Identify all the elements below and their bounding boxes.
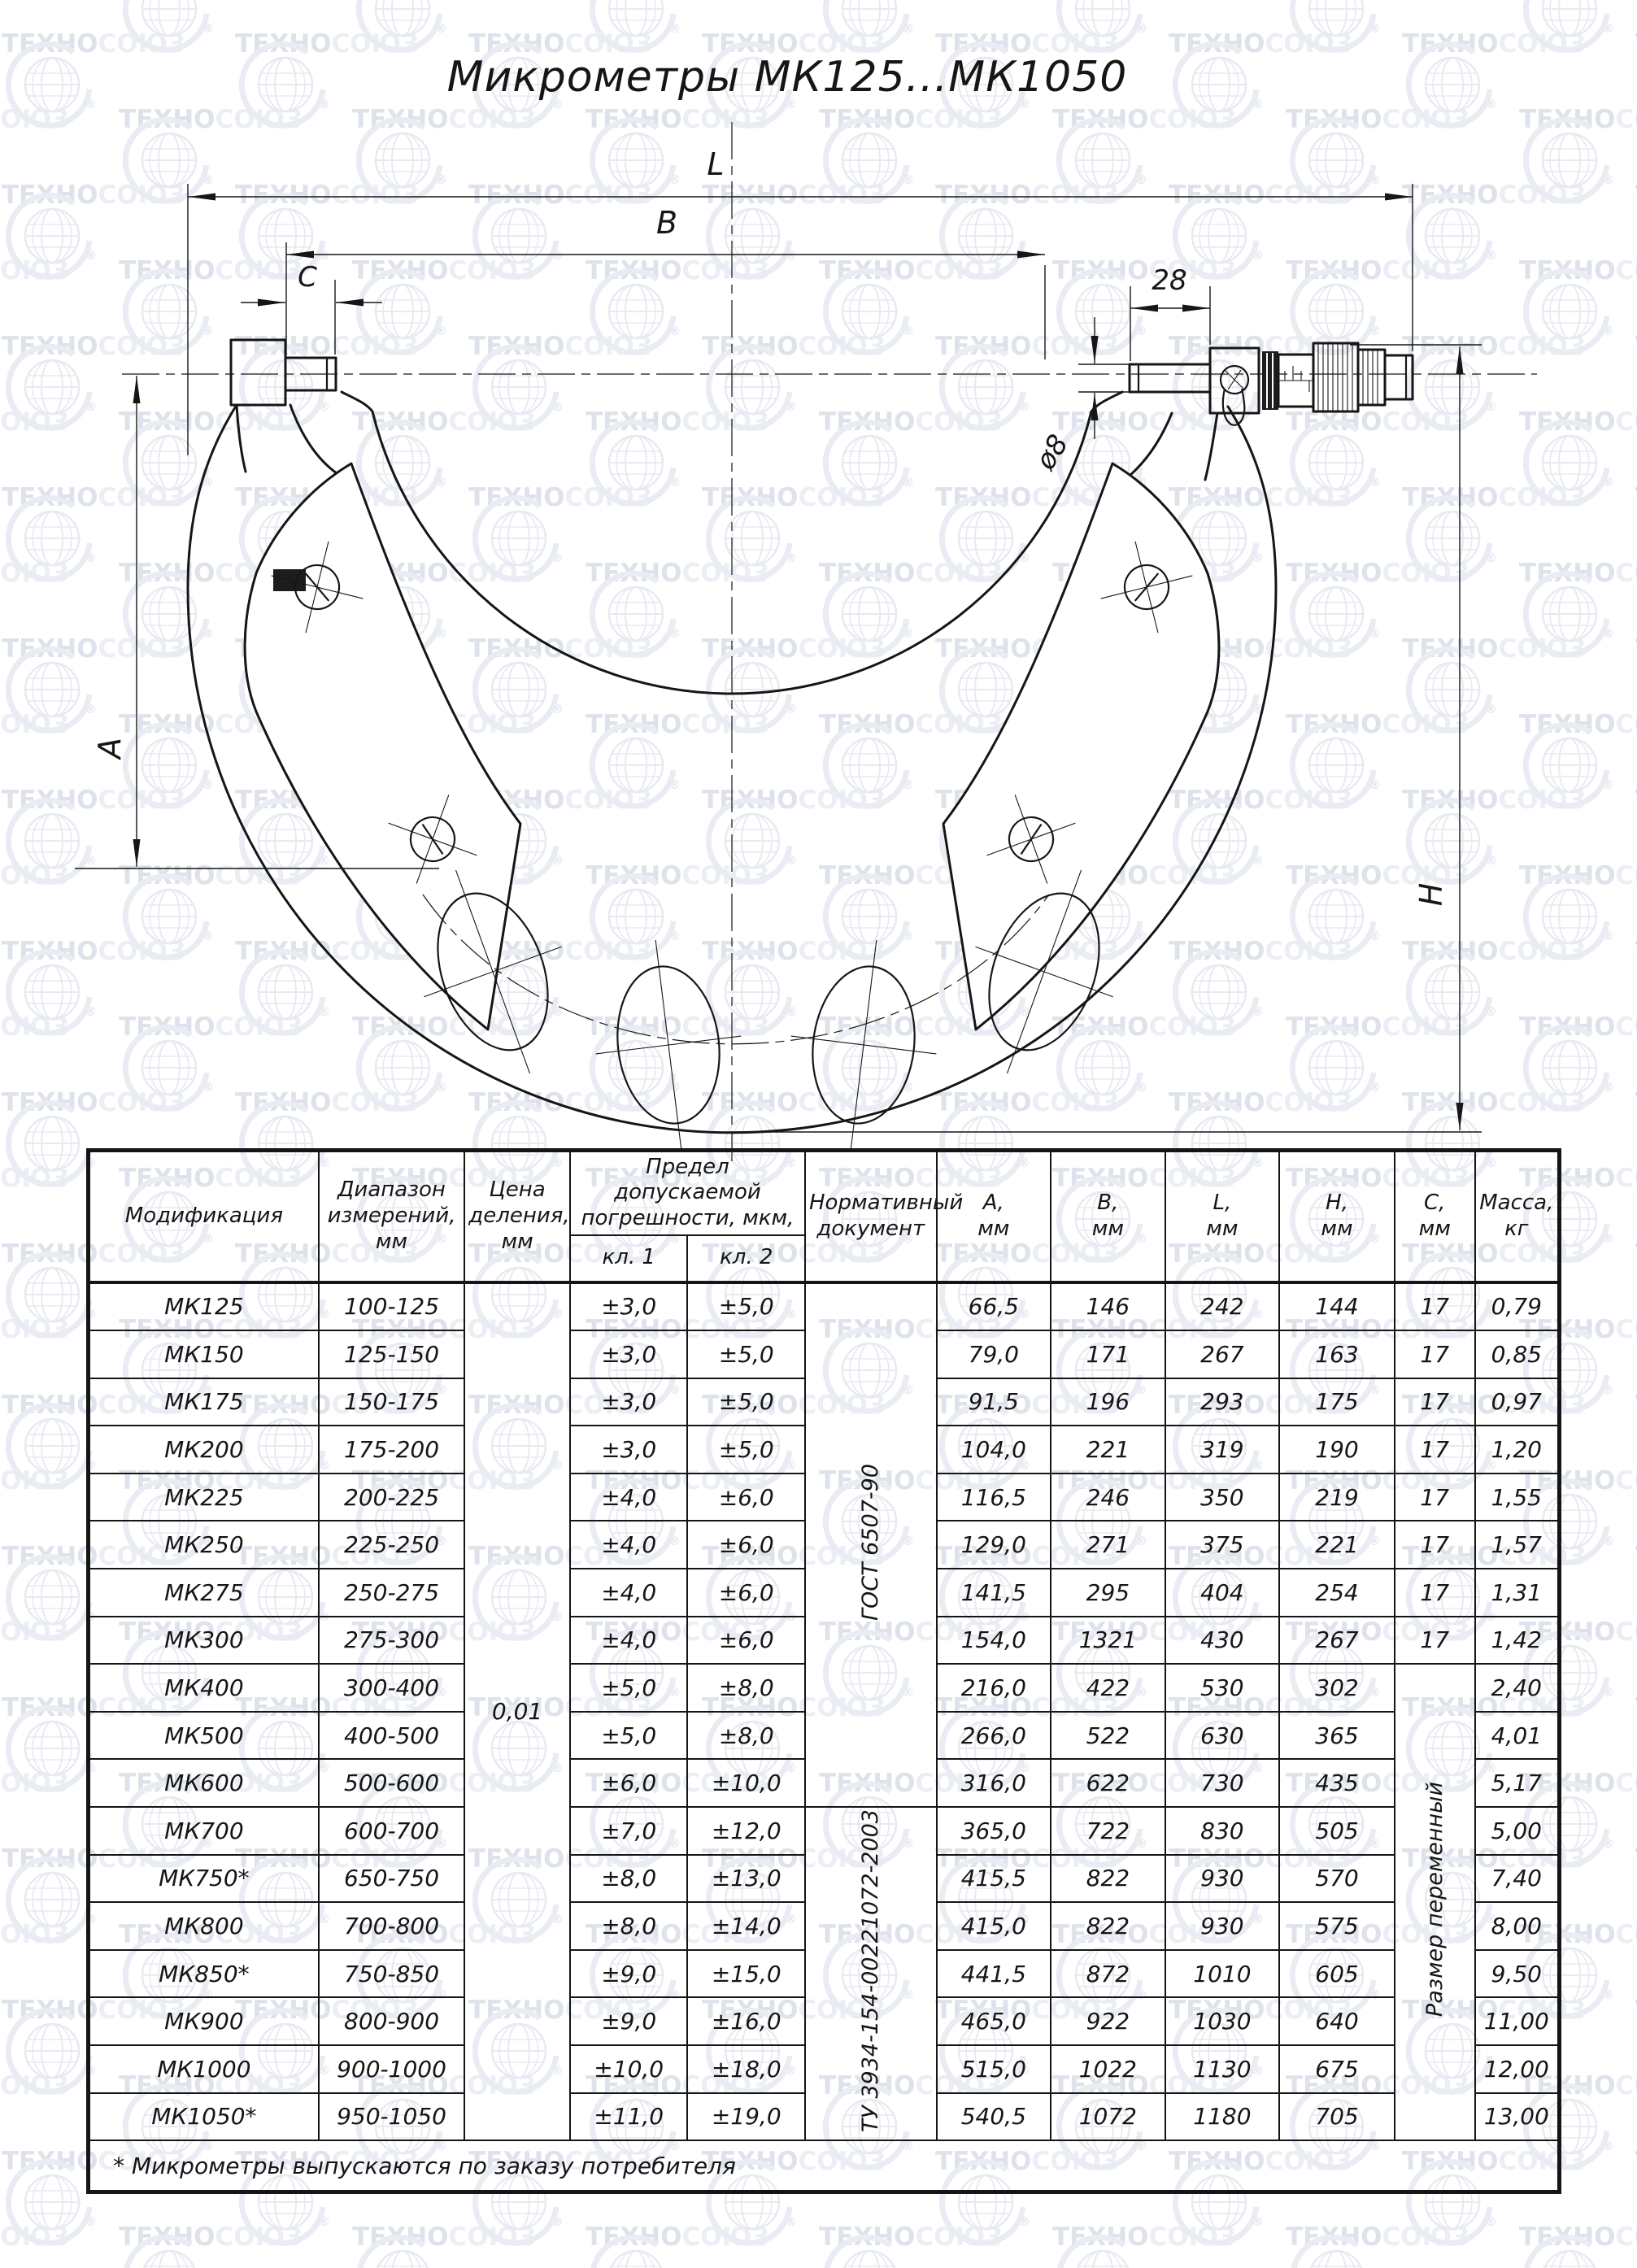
- spec-table-body: МК125100-1250,01±3,0±5,0ГОСТ 6507-9066,5…: [89, 1282, 1560, 2141]
- cell-b: 171: [1051, 1330, 1165, 1378]
- cell-l: 430: [1165, 1617, 1280, 1665]
- cell-error-class1: ±4,0: [570, 1617, 688, 1665]
- cell-b: 246: [1051, 1474, 1165, 1521]
- cell-mass: 8,00: [1475, 1902, 1560, 1950]
- cell-modification: МК900: [89, 1997, 319, 2045]
- cell-a: 316,0: [937, 1759, 1051, 1807]
- cell-b: 872: [1051, 1950, 1165, 1998]
- cell-range: 800-900: [319, 1997, 464, 2045]
- dimension-dia8: ø8: [1029, 317, 1132, 477]
- col-header-class1: кл. 1: [570, 1235, 688, 1282]
- cell-l: 1010: [1165, 1950, 1280, 1998]
- left-pad: [245, 464, 520, 1030]
- cell-range: 700-800: [319, 1902, 464, 1950]
- cell-l: 530: [1165, 1664, 1280, 1712]
- cell-h: 144: [1279, 1282, 1395, 1331]
- cell-l: 1030: [1165, 1997, 1280, 2045]
- cell-h: 605: [1279, 1950, 1395, 1998]
- cell-l: 267: [1165, 1330, 1280, 1378]
- spec-table-header: Модификация Диапазон измерений, мм Цена …: [89, 1151, 1560, 1282]
- thimble-knurling: [1318, 344, 1352, 411]
- lock-nut: [1262, 351, 1278, 410]
- cell-modification: МК250: [89, 1521, 319, 1569]
- cell-mass: 5,00: [1475, 1807, 1560, 1855]
- variable-size-label: Размер переменный: [1424, 1782, 1446, 2017]
- cell-modification: МК1000: [89, 2045, 319, 2093]
- cell-mass: 2,40: [1475, 1664, 1560, 1712]
- cell-error-class1: ±8,0: [570, 1855, 688, 1903]
- dim-label-C: C: [298, 261, 317, 294]
- cell-l: 375: [1165, 1521, 1280, 1569]
- cell-mass: 9,50: [1475, 1950, 1560, 1998]
- cell-mass: 4,01: [1475, 1712, 1560, 1760]
- cell-b: 722: [1051, 1807, 1165, 1855]
- cell-modification: МК850*: [89, 1950, 319, 1998]
- cell-a: 141,5: [937, 1569, 1051, 1617]
- cell-error-class2: ±15,0: [687, 1950, 805, 1998]
- cell-range: 275-300: [319, 1617, 464, 1665]
- cell-error-class1: ±8,0: [570, 1902, 688, 1950]
- cell-mass: 7,40: [1475, 1855, 1560, 1903]
- cell-b: 422: [1051, 1664, 1165, 1712]
- cell-a: 216,0: [937, 1664, 1051, 1712]
- cell-modification: МК225: [89, 1474, 319, 1521]
- cell-a: 515,0: [937, 2045, 1051, 2093]
- cell-modification: МК300: [89, 1617, 319, 1665]
- cell-error-class2: ±5,0: [687, 1426, 805, 1474]
- cell-error-class1: ±11,0: [570, 2093, 688, 2141]
- cell-a: 465,0: [937, 1997, 1051, 2045]
- datasheet-page: ТЕХНОСОЮЗ ® ТЕХНОСОЮЗ ТЕХНОСОЮЗ ®: [0, 0, 1637, 2268]
- col-header-range: Диапазон измерений, мм: [319, 1151, 464, 1282]
- cell-l: 1130: [1165, 2045, 1280, 2093]
- table-footnote: * Микрометры выпускаются по заказу потре…: [89, 2140, 1560, 2192]
- cell-c: 17: [1395, 1330, 1475, 1378]
- cell-range: 500-600: [319, 1759, 464, 1807]
- cell-h: 219: [1279, 1474, 1395, 1521]
- cell-error-class2: ±6,0: [687, 1474, 805, 1521]
- gost-label: ГОСТ 6507-90: [860, 1464, 882, 1621]
- cell-document-gost: ГОСТ 6507-90: [805, 1282, 937, 1808]
- cell-h: 163: [1279, 1330, 1395, 1378]
- cell-h: 267: [1279, 1617, 1395, 1665]
- cell-document-tu: ТУ 3934-154-00221072-2003: [805, 1807, 937, 2140]
- cell-l: 930: [1165, 1855, 1280, 1903]
- cell-error-class2: ±8,0: [687, 1712, 805, 1760]
- cell-c: 17: [1395, 1378, 1475, 1426]
- cell-error-class2: ±10,0: [687, 1759, 805, 1807]
- cell-c: 17: [1395, 1569, 1475, 1617]
- cell-error-class1: ±6,0: [570, 1759, 688, 1807]
- cell-division-value: 0,01: [464, 1282, 570, 2141]
- cell-modification: МК275: [89, 1569, 319, 1617]
- cell-error-class2: ±8,0: [687, 1664, 805, 1712]
- cell-h: 640: [1279, 1997, 1395, 2045]
- cell-b: 822: [1051, 1902, 1165, 1950]
- cell-mass: 1,42: [1475, 1617, 1560, 1665]
- cell-l: 1180: [1165, 2093, 1280, 2141]
- col-header-c: С, мм: [1395, 1151, 1475, 1282]
- cell-error-class2: ±6,0: [687, 1617, 805, 1665]
- cell-error-class2: ±5,0: [687, 1378, 805, 1426]
- cell-error-class1: ±10,0: [570, 2045, 688, 2093]
- cell-b: 221: [1051, 1426, 1165, 1474]
- cell-l: 350: [1165, 1474, 1280, 1521]
- cell-h: 302: [1279, 1664, 1395, 1712]
- dim-label-dia8: ø8: [1029, 429, 1075, 477]
- dim-label-28: 28: [1152, 264, 1186, 297]
- cell-modification: МК400: [89, 1664, 319, 1712]
- cell-range: 950-1050: [319, 2093, 464, 2141]
- cell-range: 400-500: [319, 1712, 464, 1760]
- micrometer-drawing: Микрометры МК125...МК1050: [0, 0, 1637, 1171]
- cell-c: 17: [1395, 1521, 1475, 1569]
- cell-mass: 1,55: [1475, 1474, 1560, 1521]
- cell-h: 254: [1279, 1569, 1395, 1617]
- cell-mass: 1,31: [1475, 1569, 1560, 1617]
- col-header-class2: кл. 2: [687, 1235, 805, 1282]
- cell-modification: МК600: [89, 1759, 319, 1807]
- cell-modification: МК125: [89, 1282, 319, 1331]
- cell-modification: МК700: [89, 1807, 319, 1855]
- cell-l: 930: [1165, 1902, 1280, 1950]
- ratchet: [1358, 350, 1385, 405]
- cell-c: 17: [1395, 1282, 1475, 1331]
- cell-a: 91,5: [937, 1378, 1051, 1426]
- dim-label-A: A: [92, 738, 128, 761]
- cell-mass: 0,85: [1475, 1330, 1560, 1378]
- spec-table-footer: * Микрометры выпускаются по заказу потре…: [89, 2140, 1560, 2192]
- cell-a: 441,5: [937, 1950, 1051, 1998]
- cell-a: 66,5: [937, 1282, 1051, 1331]
- cell-h: 570: [1279, 1855, 1395, 1903]
- frame-boss: [1210, 348, 1259, 413]
- cell-a: 266,0: [937, 1712, 1051, 1760]
- cell-mass: 13,00: [1475, 2093, 1560, 2141]
- cell-error-class1: ±7,0: [570, 1807, 688, 1855]
- cell-error-class1: ±4,0: [570, 1569, 688, 1617]
- cell-h: 221: [1279, 1521, 1395, 1569]
- cell-a: 415,5: [937, 1855, 1051, 1903]
- col-header-mass: Масса, кг: [1475, 1151, 1560, 1282]
- cell-error-class2: ±6,0: [687, 1569, 805, 1617]
- cell-range: 150-175: [319, 1378, 464, 1426]
- cell-h: 575: [1279, 1902, 1395, 1950]
- cell-b: 1321: [1051, 1617, 1165, 1665]
- cell-error-class2: ±5,0: [687, 1330, 805, 1378]
- dim-label-L: L: [707, 146, 724, 182]
- cell-l: 319: [1165, 1426, 1280, 1474]
- cell-a: 129,0: [937, 1521, 1051, 1569]
- cell-a: 540,5: [937, 2093, 1051, 2141]
- cell-error-class1: ±4,0: [570, 1474, 688, 1521]
- cell-error-class2: ±6,0: [687, 1521, 805, 1569]
- cell-l: 730: [1165, 1759, 1280, 1807]
- cell-modification: МК175: [89, 1378, 319, 1426]
- anvil: [231, 340, 336, 405]
- cell-mass: 0,97: [1475, 1378, 1560, 1426]
- cell-range: 225-250: [319, 1521, 464, 1569]
- dimension-28: 28: [1130, 264, 1210, 361]
- cell-l: 242: [1165, 1282, 1280, 1331]
- spec-table: Модификация Диапазон измерений, мм Цена …: [86, 1148, 1561, 2194]
- cell-range: 175-200: [319, 1426, 464, 1474]
- col-header-division: Цена деления, мм: [464, 1151, 570, 1282]
- cell-a: 79,0: [937, 1330, 1051, 1378]
- cell-b: 922: [1051, 1997, 1165, 2045]
- cell-h: 175: [1279, 1378, 1395, 1426]
- cell-error-class1: ±9,0: [570, 1950, 688, 1998]
- cell-modification: МК200: [89, 1426, 319, 1474]
- cell-c: 17: [1395, 1426, 1475, 1474]
- col-header-document: Нормативный документ: [805, 1151, 937, 1282]
- cell-error-class1: ±3,0: [570, 1330, 688, 1378]
- cell-error-class2: ±13,0: [687, 1855, 805, 1903]
- cell-modification: МК500: [89, 1712, 319, 1760]
- cell-a: 116,5: [937, 1474, 1051, 1521]
- cell-b: 271: [1051, 1521, 1165, 1569]
- dim-label-B: B: [656, 205, 677, 241]
- thimble: [1313, 343, 1358, 411]
- page-title: Микрометры МК125...МК1050: [447, 53, 1128, 102]
- col-header-a: А, мм: [937, 1151, 1051, 1282]
- cell-range: 650-750: [319, 1855, 464, 1903]
- cell-range: 125-150: [319, 1330, 464, 1378]
- col-header-b: В, мм: [1051, 1151, 1165, 1282]
- cell-l: 293: [1165, 1378, 1280, 1426]
- cell-error-class2: ±19,0: [687, 2093, 805, 2141]
- cell-mass: 5,17: [1475, 1759, 1560, 1807]
- cell-mass: 12,00: [1475, 2045, 1560, 2093]
- cell-h: 505: [1279, 1807, 1395, 1855]
- cell-modification: МК750*: [89, 1855, 319, 1903]
- cell-c-merged: Размер переменный: [1395, 1664, 1475, 2140]
- cell-error-class1: ±9,0: [570, 1997, 688, 2045]
- cell-b: 822: [1051, 1855, 1165, 1903]
- cell-error-class2: ±14,0: [687, 1902, 805, 1950]
- ratchet-knurling: [1363, 350, 1378, 404]
- col-header-error: Предел допускаемой погрешности, мкм,: [570, 1151, 805, 1235]
- cell-range: 300-400: [319, 1664, 464, 1712]
- cell-b: 295: [1051, 1569, 1165, 1617]
- cell-error-class1: ±5,0: [570, 1712, 688, 1760]
- col-header-l: L, мм: [1165, 1151, 1280, 1282]
- cell-error-class1: ±3,0: [570, 1282, 688, 1331]
- cell-h: 190: [1279, 1426, 1395, 1474]
- cell-l: 830: [1165, 1807, 1280, 1855]
- dimension-B: B: [286, 205, 1045, 359]
- cell-b: 196: [1051, 1378, 1165, 1426]
- cell-range: 200-225: [319, 1474, 464, 1521]
- cell-error-class1: ±4,0: [570, 1521, 688, 1569]
- cell-h: 705: [1279, 2093, 1395, 2141]
- spindle-rod: [1130, 364, 1210, 392]
- col-header-h: Н, мм: [1279, 1151, 1395, 1282]
- cell-mass: 11,00: [1475, 1997, 1560, 2045]
- cell-range: 600-700: [319, 1807, 464, 1855]
- cell-modification: МК150: [89, 1330, 319, 1378]
- cell-h: 435: [1279, 1759, 1395, 1807]
- cell-modification: МК1050*: [89, 2093, 319, 2141]
- cell-a: 104,0: [937, 1426, 1051, 1474]
- cell-c: 17: [1395, 1617, 1475, 1665]
- col-header-modification: Модификация: [89, 1151, 319, 1282]
- cell-b: 146: [1051, 1282, 1165, 1331]
- ratchet-cap: [1385, 355, 1413, 399]
- cell-range: 900-1000: [319, 2045, 464, 2093]
- cell-range: 250-275: [319, 1569, 464, 1617]
- cell-range: 100-125: [319, 1282, 464, 1331]
- cell-a: 154,0: [937, 1617, 1051, 1665]
- cell-modification: МК800: [89, 1902, 319, 1950]
- cell-error-class2: ±18,0: [687, 2045, 805, 2093]
- table-row: МК700600-700±7,0±12,0ТУ 3934-154-0022107…: [89, 1807, 1560, 1855]
- cell-a: 415,0: [937, 1902, 1051, 1950]
- cell-b: 1022: [1051, 2045, 1165, 2093]
- cell-mass: 0,79: [1475, 1282, 1560, 1331]
- cell-mass: 1,57: [1475, 1521, 1560, 1569]
- cell-error-class2: ±5,0: [687, 1282, 805, 1331]
- cell-c: 17: [1395, 1474, 1475, 1521]
- cell-h: 365: [1279, 1712, 1395, 1760]
- cell-error-class1: ±3,0: [570, 1378, 688, 1426]
- cell-mass: 1,20: [1475, 1426, 1560, 1474]
- cell-b: 622: [1051, 1759, 1165, 1807]
- cell-l: 404: [1165, 1569, 1280, 1617]
- cell-error-class1: ±5,0: [570, 1664, 688, 1712]
- cell-error-class1: ±3,0: [570, 1426, 688, 1474]
- cell-error-class2: ±12,0: [687, 1807, 805, 1855]
- right-pad: [943, 464, 1219, 1030]
- tu-label: ТУ 3934-154-00221072-2003: [860, 1809, 882, 2132]
- table-row: МК125100-1250,01±3,0±5,0ГОСТ 6507-9066,5…: [89, 1282, 1560, 1331]
- cell-l: 630: [1165, 1712, 1280, 1760]
- dim-label-H: H: [1413, 883, 1449, 907]
- cell-b: 1072: [1051, 2093, 1165, 2141]
- cell-error-class2: ±16,0: [687, 1997, 805, 2045]
- cell-range: 750-850: [319, 1950, 464, 1998]
- cell-h: 675: [1279, 2045, 1395, 2093]
- cell-a: 365,0: [937, 1807, 1051, 1855]
- cell-b: 522: [1051, 1712, 1165, 1760]
